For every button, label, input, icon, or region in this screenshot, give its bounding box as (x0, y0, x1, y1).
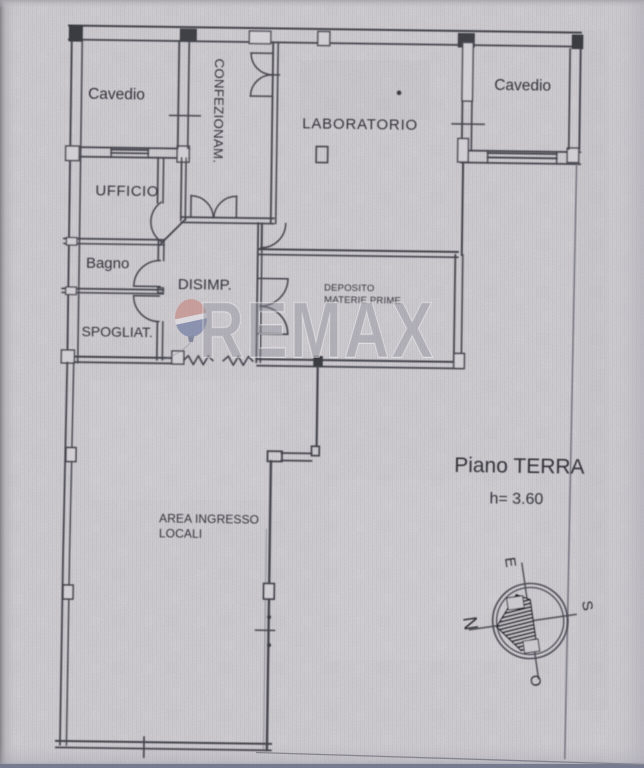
svg-text:Cavedio: Cavedio (88, 86, 145, 104)
svg-text:h= 3.60: h= 3.60 (489, 490, 543, 508)
svg-text:Piano TERRA: Piano TERRA (454, 454, 585, 479)
svg-text:REMAX: REMAX (199, 287, 435, 375)
svg-text:O: O (526, 674, 544, 688)
svg-text:SPOGLIAT.: SPOGLIAT. (81, 323, 153, 340)
svg-text:LOCALI: LOCALI (159, 526, 202, 541)
svg-text:AREA INGRESSO: AREA INGRESSO (159, 511, 259, 526)
svg-text:Bagno: Bagno (86, 255, 130, 273)
svg-text:Cavedio: Cavedio (494, 77, 551, 95)
svg-text:LABORATORIO: LABORATORIO (302, 115, 418, 134)
svg-text:CONFEZIONAM.: CONFEZIONAM. (211, 58, 227, 163)
svg-text:UFFICIO: UFFICIO (95, 182, 159, 200)
